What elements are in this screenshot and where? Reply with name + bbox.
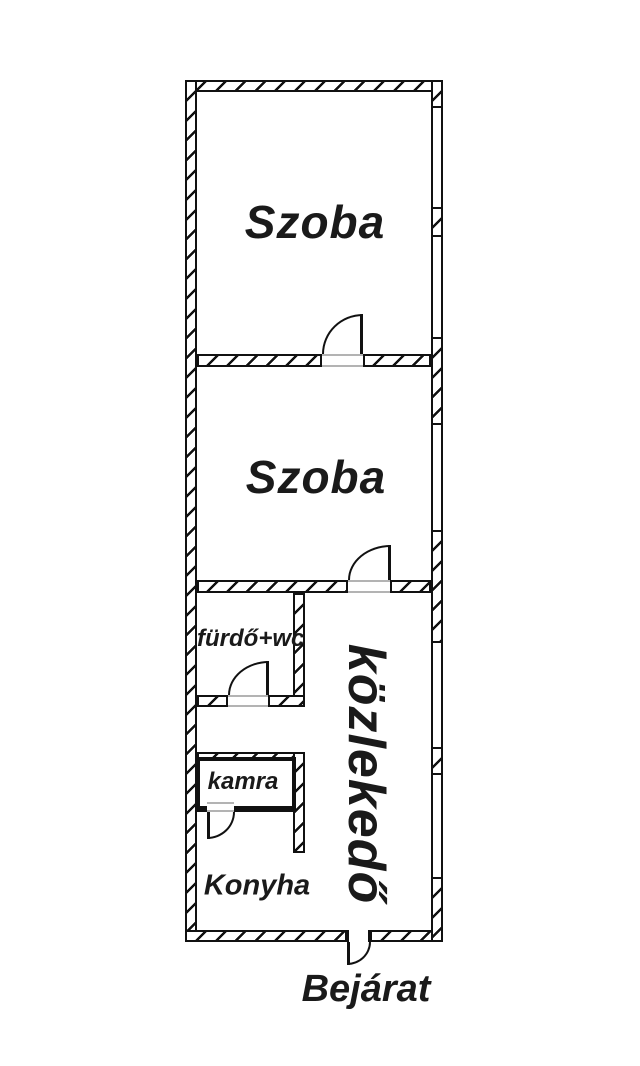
window [431,643,443,747]
door-arc-kamra [207,812,235,839]
door-opening-szoba-1 [322,354,363,367]
room-label-szoba-1: Szoba [245,199,385,245]
door-opening-kamra [207,802,234,812]
door-opening-furdo [228,695,268,707]
wall-furdo-bottom-right [268,695,305,707]
right-wall-segment [431,337,443,425]
room-label-konyha: Konyha [204,872,310,901]
door-arc-furdo [228,661,269,695]
right-wall-pier [431,207,443,237]
exterior-wall-bottom-left [185,930,347,942]
door-arc-szoba-1 [322,314,363,354]
entrance-label: Bejárat [302,970,431,1008]
door-arc-szoba-2 [348,545,391,580]
exterior-wall-left [185,80,197,942]
wall-szoba-divider-right [363,354,431,367]
door-arc-entrance [347,942,371,965]
wall-furdo-bottom-left [197,695,228,707]
window [431,237,443,337]
right-wall-segment [431,877,443,942]
right-wall-segment [431,530,443,643]
room-label-furdo: fürdő+wc [197,627,304,651]
room-label-kozlekedo: közlekedő [340,644,392,904]
window [431,425,443,530]
exterior-wall-top [185,80,443,92]
window [431,775,443,877]
right-wall-pier [431,747,443,775]
door-opening-entrance [347,930,370,942]
door-opening-szoba-2 [348,580,390,593]
floor-plan: Szoba Szoba fürdő+wc közlekedő kamra Kon… [0,0,640,1066]
window [431,108,443,207]
wall-szoba-divider-left [197,354,322,367]
right-wall-segment [431,80,443,108]
room-label-szoba-2: Szoba [246,454,386,500]
wall-szoba2-bottom-right [390,580,431,593]
room-label-kamra: kamra [208,770,279,794]
wall-szoba2-bottom-left [197,580,348,593]
